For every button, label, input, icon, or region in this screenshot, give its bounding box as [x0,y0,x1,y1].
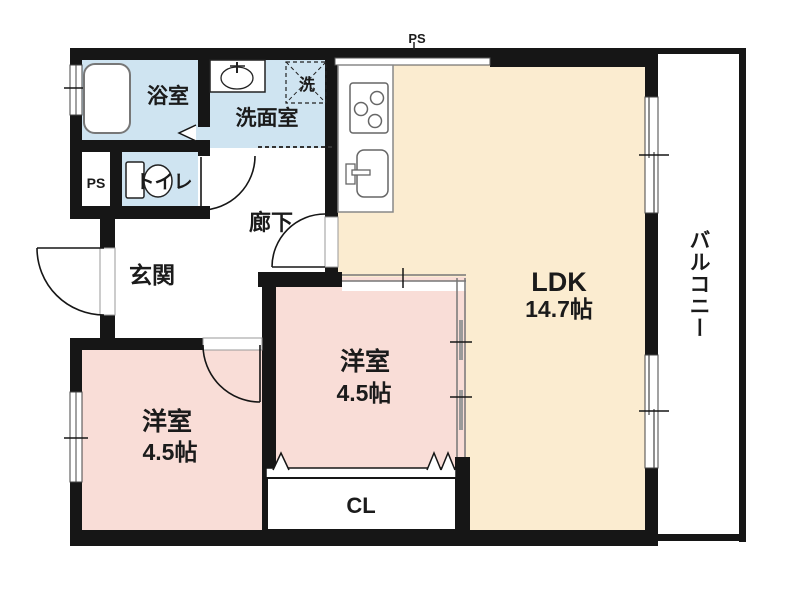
ps-closet-label: PS [87,175,106,191]
wall-right-seg2 [645,213,658,355]
bedroom-center-size-label: 4.5帖 [337,380,392,406]
ldk-label: LDK [531,267,587,297]
wall-bedroom-left-top [70,338,203,350]
wall-toilet-top-stub [198,140,210,156]
bathroom-label: 浴室 [147,84,189,108]
wall-bottom [70,530,658,546]
ps-top-label: PS [408,31,426,46]
wall-toilet-bottom [70,206,210,219]
partition-threshold [342,281,466,291]
wall-entrance-upper [100,206,115,248]
wall-top-step [490,58,658,67]
corridor-label: 廊下 [249,210,293,235]
balcony-wall-top [658,48,746,54]
balcony-label: バルコニー [685,229,713,379]
ldk-size-label: 14.7帖 [525,296,593,322]
laundry-label: 洗 [299,75,315,94]
washbasin-icon [210,60,265,92]
toilet-label: トイレ [135,172,192,193]
wall-bath-washroom [198,48,210,127]
entrance-label: 玄関 [129,262,175,288]
bathtub-icon [84,64,130,133]
wall-closet-right [455,457,470,530]
wall-right-seg1 [645,48,658,97]
bedroom-left-size-label: 4.5帖 [143,439,198,465]
pipe-space-strip [335,58,490,65]
wall-right-seg3 [645,468,658,530]
balcony-wall-right [739,48,746,542]
floorplan-canvas: PS 浴室 洗面室 洗 トイレ PS 廊下 玄関 LDK 14.7帖 洋室 4.… [0,0,808,602]
balcony-wall-bottom [658,534,746,541]
closet-label: CL [346,493,375,518]
wall-corridor-ldk [325,48,338,217]
wall-bath-bottom [70,140,210,152]
bedroom-left-label: 洋室 [142,407,192,436]
bedroom-center-label: 洋室 [340,347,390,376]
washroom-label: 洗面室 [236,106,299,130]
